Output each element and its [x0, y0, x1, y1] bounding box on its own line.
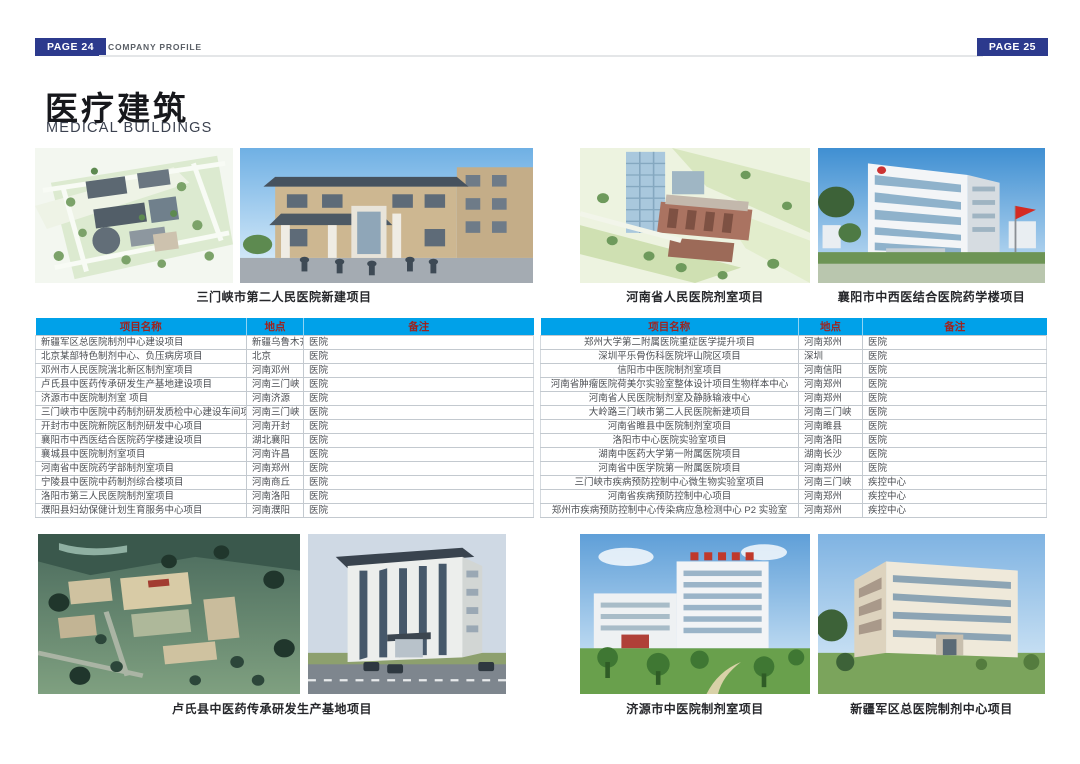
project-name-cell: 襄阳市中西医结合医院药学楼建设项目: [36, 433, 247, 447]
project-name-cell: 大岭路三门峡市第二人民医院新建项目: [541, 405, 799, 419]
column-header-location: 地点: [799, 318, 863, 335]
note-cell: 医院: [863, 349, 1047, 363]
photo-jiyuan-tcm-hospital: [580, 534, 810, 694]
table-row: 洛阳市第三人民医院制剂室项目河南洛阳医院: [36, 489, 534, 503]
projects-table-left: 项目名称 地点 备注 新疆军区总医院制剂中心建设项目新疆乌鲁木齐医院北京某部特色…: [35, 318, 534, 518]
location-cell: 河南开封: [247, 419, 304, 433]
location-cell: 深圳: [799, 349, 863, 363]
building-rendering-dusk-campus: [38, 534, 300, 694]
table-row: 河南省疾病预防控制中心项目河南郑州疾控中心: [541, 489, 1047, 503]
table-row: 北京某部特色制剂中心、负压病房项目北京医院: [36, 349, 534, 363]
note-cell: 医院: [304, 489, 534, 503]
note-cell: 医院: [304, 405, 534, 419]
building-rendering-cream-building: [818, 534, 1045, 694]
building-rendering-aerial-green: [35, 148, 233, 283]
photo-caption: 三门峡市第二人民医院新建项目: [35, 288, 533, 305]
location-cell: 河南郑州: [799, 335, 863, 349]
header-divider: [99, 55, 983, 57]
photo-lushi-white-building: [308, 534, 506, 694]
note-cell: 医院: [304, 377, 534, 391]
project-name-cell: 信阳市中医院制剂室项目: [541, 363, 799, 377]
location-cell: 新疆乌鲁木齐: [247, 335, 304, 349]
project-name-cell: 郑州市疾病预防控制中心传染病应急检测中心 P2 实验室: [541, 503, 799, 517]
note-cell: 医院: [863, 391, 1047, 405]
location-cell: 河南郑州: [799, 461, 863, 475]
photo-caption: 襄阳市中西医结合医院药学楼项目: [818, 288, 1045, 305]
table-row: 濮阳县妇幼保健计划生育服务中心项目河南濮阳医院: [36, 503, 534, 517]
table-row: 信阳市中医院制剂室项目河南信阳医院: [541, 363, 1047, 377]
table-row: 郑州市疾病预防控制中心传染病应急检测中心 P2 实验室河南郑州疾控中心: [541, 503, 1047, 517]
project-name-cell: 郑州大学第二附属医院重症医学提升项目: [541, 335, 799, 349]
table-row: 河南省人民医院制剂室及静脉输液中心河南郑州医院: [541, 391, 1047, 405]
column-header-note: 备注: [863, 318, 1047, 335]
note-cell: 医院: [863, 433, 1047, 447]
location-cell: 河南许昌: [247, 447, 304, 461]
note-cell: 医院: [863, 377, 1047, 391]
projects-table-section: 项目名称 地点 备注 新疆军区总医院制剂中心建设项目新疆乌鲁木齐医院北京某部特色…: [35, 318, 1045, 518]
note-cell: 医院: [863, 363, 1047, 377]
table-row: 三门峡市疾病预防控制中心微生物实验室项目河南三门峡疾控中心: [541, 475, 1047, 489]
location-cell: 河南三门峡: [799, 405, 863, 419]
project-name-cell: 河南省人民医院制剂室及静脉输液中心: [541, 391, 799, 405]
location-cell: 河南洛阳: [799, 433, 863, 447]
project-name-cell: 深圳平乐骨伤科医院坪山院区项目: [541, 349, 799, 363]
page-number-badge-left: PAGE 24: [35, 38, 106, 56]
column-header-note: 备注: [304, 318, 534, 335]
table-row: 卢氏县中医药传承研发生产基地建设项目河南三门峡医院: [36, 377, 534, 391]
photo-caption: 卢氏县中医药传承研发生产基地项目: [38, 700, 506, 717]
note-cell: 医院: [304, 447, 534, 461]
project-name-cell: 湖南中医药大学第一附属医院项目: [541, 447, 799, 461]
project-name-cell: 河南省中医学院第一附属医院项目: [541, 461, 799, 475]
note-cell: 医院: [863, 419, 1047, 433]
project-name-cell: 新疆军区总医院制剂中心建设项目: [36, 335, 247, 349]
table-row: 洛阳市中心医院实验室项目河南洛阳医院: [541, 433, 1047, 447]
photo-sanmenxia-hospital-entrance: [240, 148, 533, 283]
location-cell: 河南邓州: [247, 363, 304, 377]
project-name-cell: 三门峡市中医院中药制剂研发质检中心建设车间项目: [36, 405, 247, 419]
note-cell: 医院: [863, 405, 1047, 419]
note-cell: 医院: [863, 461, 1047, 475]
photo-henan-provincial-hospital-aerial: [580, 148, 810, 283]
note-cell: 医院: [304, 475, 534, 489]
table-row: 开封市中医院新院区制剂研发中心项目河南开封医院: [36, 419, 534, 433]
table-row: 深圳平乐骨伤科医院坪山院区项目深圳医院: [541, 349, 1047, 363]
location-cell: 湖南长沙: [799, 447, 863, 461]
table-row: 三门峡市中医院中药制剂研发质检中心建设车间项目河南三门峡医院: [36, 405, 534, 419]
brochure-spread: PAGE 24 COMPANY PROFILE PAGE 25 医疗建筑 MED…: [0, 0, 1080, 764]
photo-caption: 新疆军区总医院制剂中心项目: [818, 700, 1045, 717]
photo-xiangyang-pharmacy-building: [818, 148, 1045, 283]
table-header-row: 项目名称 地点 备注: [541, 318, 1047, 335]
location-cell: 河南商丘: [247, 475, 304, 489]
table-row: 宁陵县中医院中药制剂综合楼项目河南商丘医院: [36, 475, 534, 489]
location-cell: 河南郑州: [799, 377, 863, 391]
location-cell: 河南三门峡: [247, 405, 304, 419]
note-cell: 医院: [304, 433, 534, 447]
note-cell: 疾控中心: [863, 489, 1047, 503]
note-cell: 医院: [304, 335, 534, 349]
table-row: 郑州大学第二附属医院重症医学提升项目河南郑州医院: [541, 335, 1047, 349]
table-row: 邓州市人民医院湍北新区制剂室项目河南邓州医院: [36, 363, 534, 377]
project-name-cell: 河南省疾病预防控制中心项目: [541, 489, 799, 503]
note-cell: 医院: [863, 335, 1047, 349]
table-row: 济源市中医院制剂室 项目河南济源医院: [36, 391, 534, 405]
project-name-cell: 濮阳县妇幼保健计划生育服务中心项目: [36, 503, 247, 517]
location-cell: 河南郑州: [799, 489, 863, 503]
table-row: 大岭路三门峡市第二人民医院新建项目河南三门峡医院: [541, 405, 1047, 419]
table-row: 河南省中医院药学部制剂室项目河南郑州医院: [36, 461, 534, 475]
project-name-cell: 洛阳市中心医院实验室项目: [541, 433, 799, 447]
location-cell: 河南三门峡: [799, 475, 863, 489]
photo-caption: 河南省人民医院剂室项目: [580, 288, 810, 305]
location-cell: 河南濮阳: [247, 503, 304, 517]
location-cell: 河南郑州: [247, 461, 304, 475]
building-rendering-white-tower: [308, 534, 506, 694]
note-cell: 疾控中心: [863, 475, 1047, 489]
project-name-cell: 开封市中医院新院区制剂研发中心项目: [36, 419, 247, 433]
building-rendering-white-flag: [818, 148, 1045, 283]
project-name-cell: 邓州市人民医院湍北新区制剂室项目: [36, 363, 247, 377]
project-name-cell: 洛阳市第三人民医院制剂室项目: [36, 489, 247, 503]
project-name-cell: 卢氏县中医药传承研发生产基地建设项目: [36, 377, 247, 391]
photo-lushi-base-aerial: [38, 534, 300, 694]
building-rendering-entrance: [240, 148, 533, 283]
table-row: 湖南中医药大学第一附属医院项目湖南长沙医院: [541, 447, 1047, 461]
note-cell: 医院: [304, 461, 534, 475]
column-header-project-name: 项目名称: [36, 318, 247, 335]
building-rendering-hospital-lawn: [580, 534, 810, 694]
note-cell: 医院: [863, 447, 1047, 461]
table-row: 河南省睢县中医院制剂室项目河南睢县医院: [541, 419, 1047, 433]
section-label: COMPANY PROFILE: [108, 42, 202, 52]
location-cell: 北京: [247, 349, 304, 363]
page-subtitle: MEDICAL BUILDINGS: [46, 120, 213, 136]
photo-xinjiang-preparation-center: [818, 534, 1045, 694]
building-rendering-tower-aerial: [580, 148, 810, 283]
note-cell: 疾控中心: [863, 503, 1047, 517]
note-cell: 医院: [304, 391, 534, 405]
table-row: 河南省中医学院第一附属医院项目河南郑州医院: [541, 461, 1047, 475]
project-name-cell: 襄城县中医院制剂室项目: [36, 447, 247, 461]
column-header-location: 地点: [247, 318, 304, 335]
location-cell: 河南洛阳: [247, 489, 304, 503]
note-cell: 医院: [304, 419, 534, 433]
table-row: 新疆军区总医院制剂中心建设项目新疆乌鲁木齐医院: [36, 335, 534, 349]
location-cell: 河南睢县: [799, 419, 863, 433]
table-row: 襄阳市中西医结合医院药学楼建设项目湖北襄阳医院: [36, 433, 534, 447]
location-cell: 河南济源: [247, 391, 304, 405]
project-name-cell: 河南省中医院药学部制剂室项目: [36, 461, 247, 475]
note-cell: 医院: [304, 363, 534, 377]
location-cell: 河南三门峡: [247, 377, 304, 391]
table-header-row: 项目名称 地点 备注: [36, 318, 534, 335]
project-name-cell: 宁陵县中医院中药制剂综合楼项目: [36, 475, 247, 489]
location-cell: 湖北襄阳: [247, 433, 304, 447]
note-cell: 医院: [304, 349, 534, 363]
project-name-cell: 北京某部特色制剂中心、负压病房项目: [36, 349, 247, 363]
table-row: 河南省肿瘤医院荷美尔实验室整体设计项目生物样本中心河南郑州医院: [541, 377, 1047, 391]
photo-sanmenxia-hospital-aerial: [35, 148, 233, 283]
project-name-cell: 河南省睢县中医院制剂室项目: [541, 419, 799, 433]
photo-caption: 济源市中医院制剂室项目: [580, 700, 810, 717]
project-name-cell: 河南省肿瘤医院荷美尔实验室整体设计项目生物样本中心: [541, 377, 799, 391]
page-number-badge-right: PAGE 25: [977, 38, 1048, 56]
column-header-project-name: 项目名称: [541, 318, 799, 335]
projects-table-right: 项目名称 地点 备注 郑州大学第二附属医院重症医学提升项目河南郑州医院深圳平乐骨…: [540, 318, 1047, 518]
project-name-cell: 济源市中医院制剂室 项目: [36, 391, 247, 405]
location-cell: 河南郑州: [799, 391, 863, 405]
table-row: 襄城县中医院制剂室项目河南许昌医院: [36, 447, 534, 461]
location-cell: 河南信阳: [799, 363, 863, 377]
location-cell: 河南郑州: [799, 503, 863, 517]
project-name-cell: 三门峡市疾病预防控制中心微生物实验室项目: [541, 475, 799, 489]
note-cell: 医院: [304, 503, 534, 517]
